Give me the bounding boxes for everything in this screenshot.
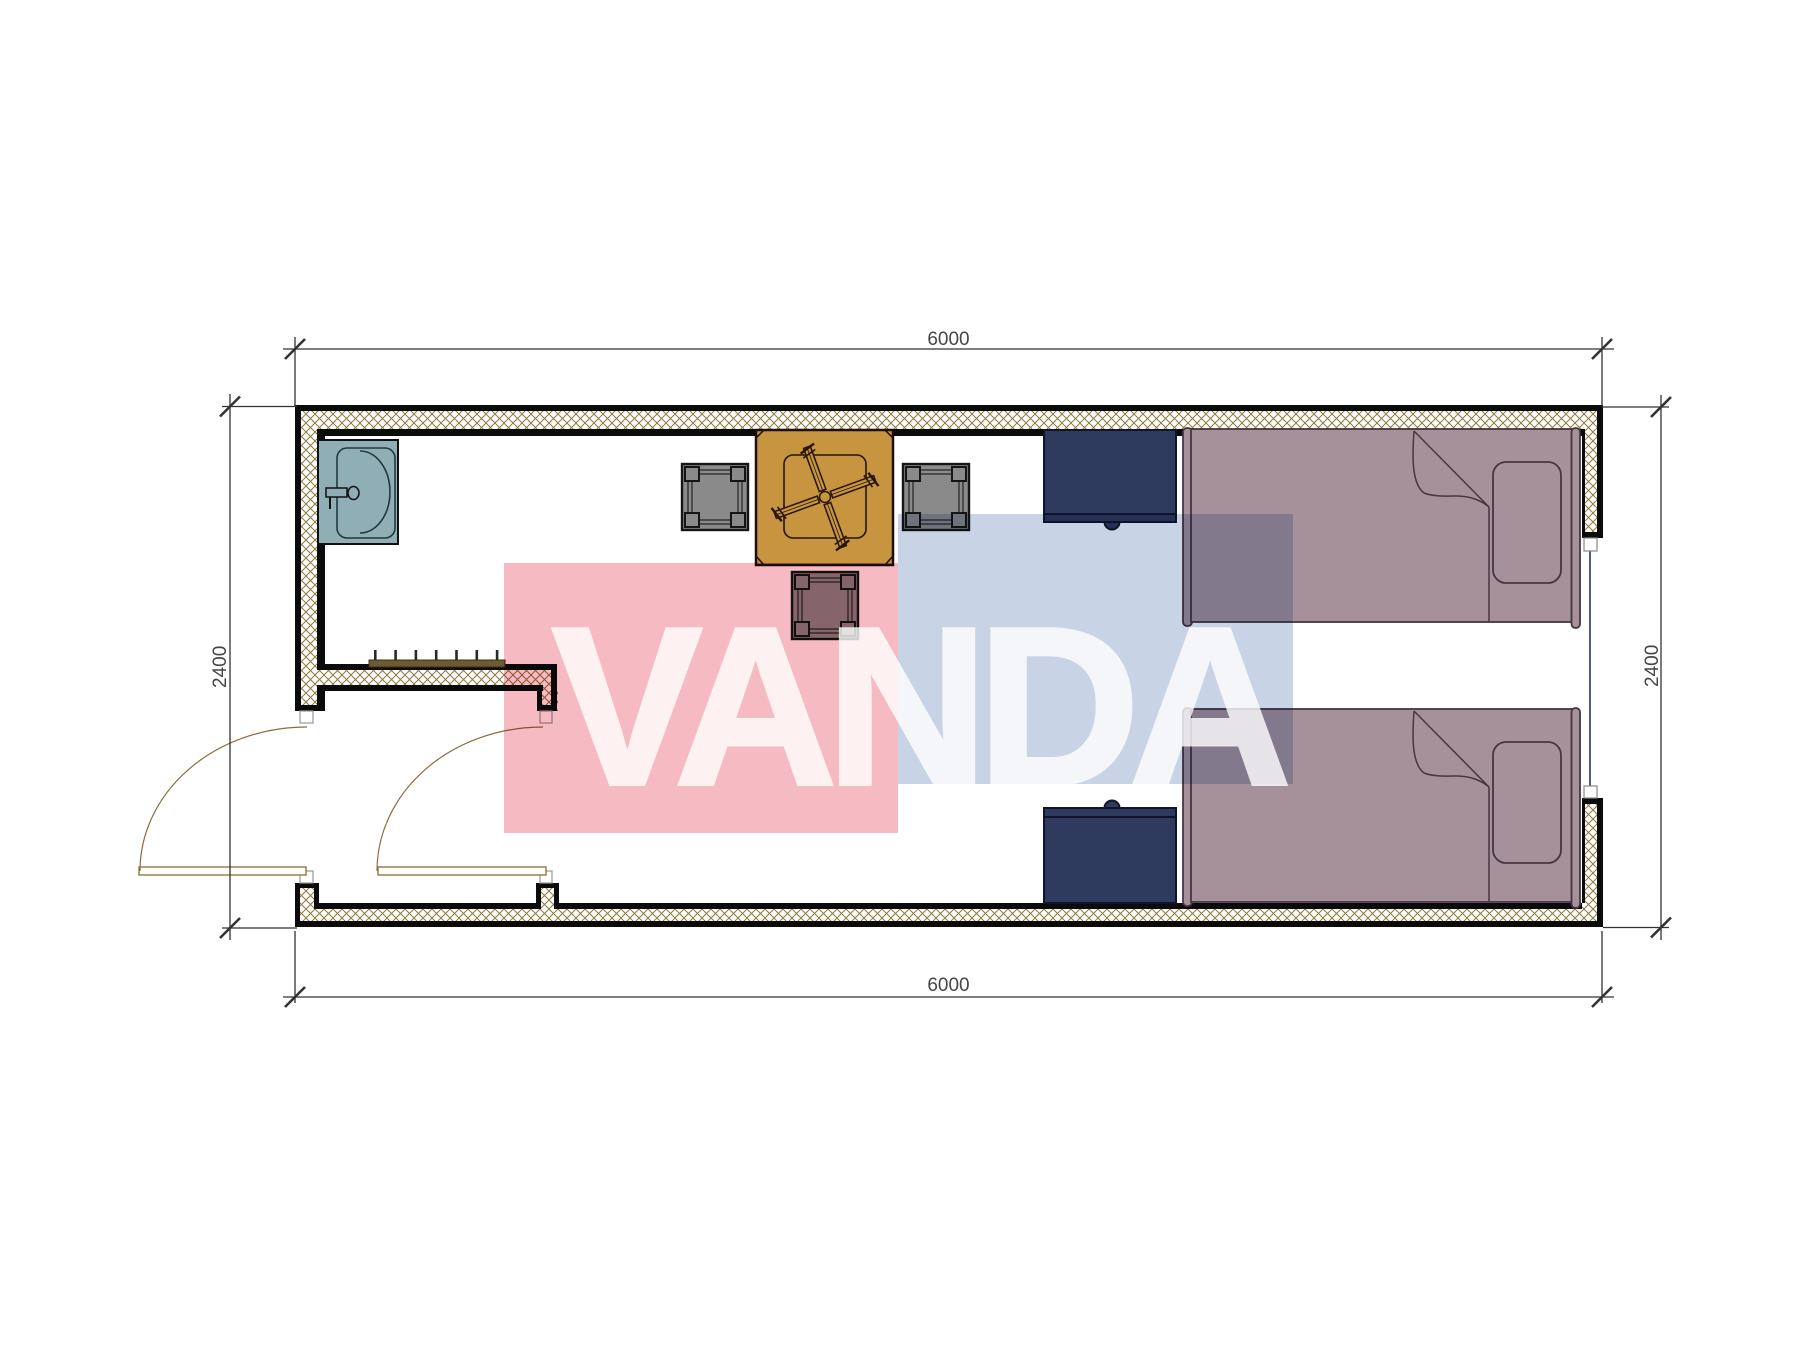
svg-text:6000: 6000	[927, 975, 969, 996]
svg-text:2400: 2400	[1642, 645, 1663, 687]
svg-text:VANDA: VANDA	[552, 580, 1286, 832]
svg-text:2400: 2400	[210, 646, 231, 688]
svg-text:6000: 6000	[927, 329, 969, 350]
